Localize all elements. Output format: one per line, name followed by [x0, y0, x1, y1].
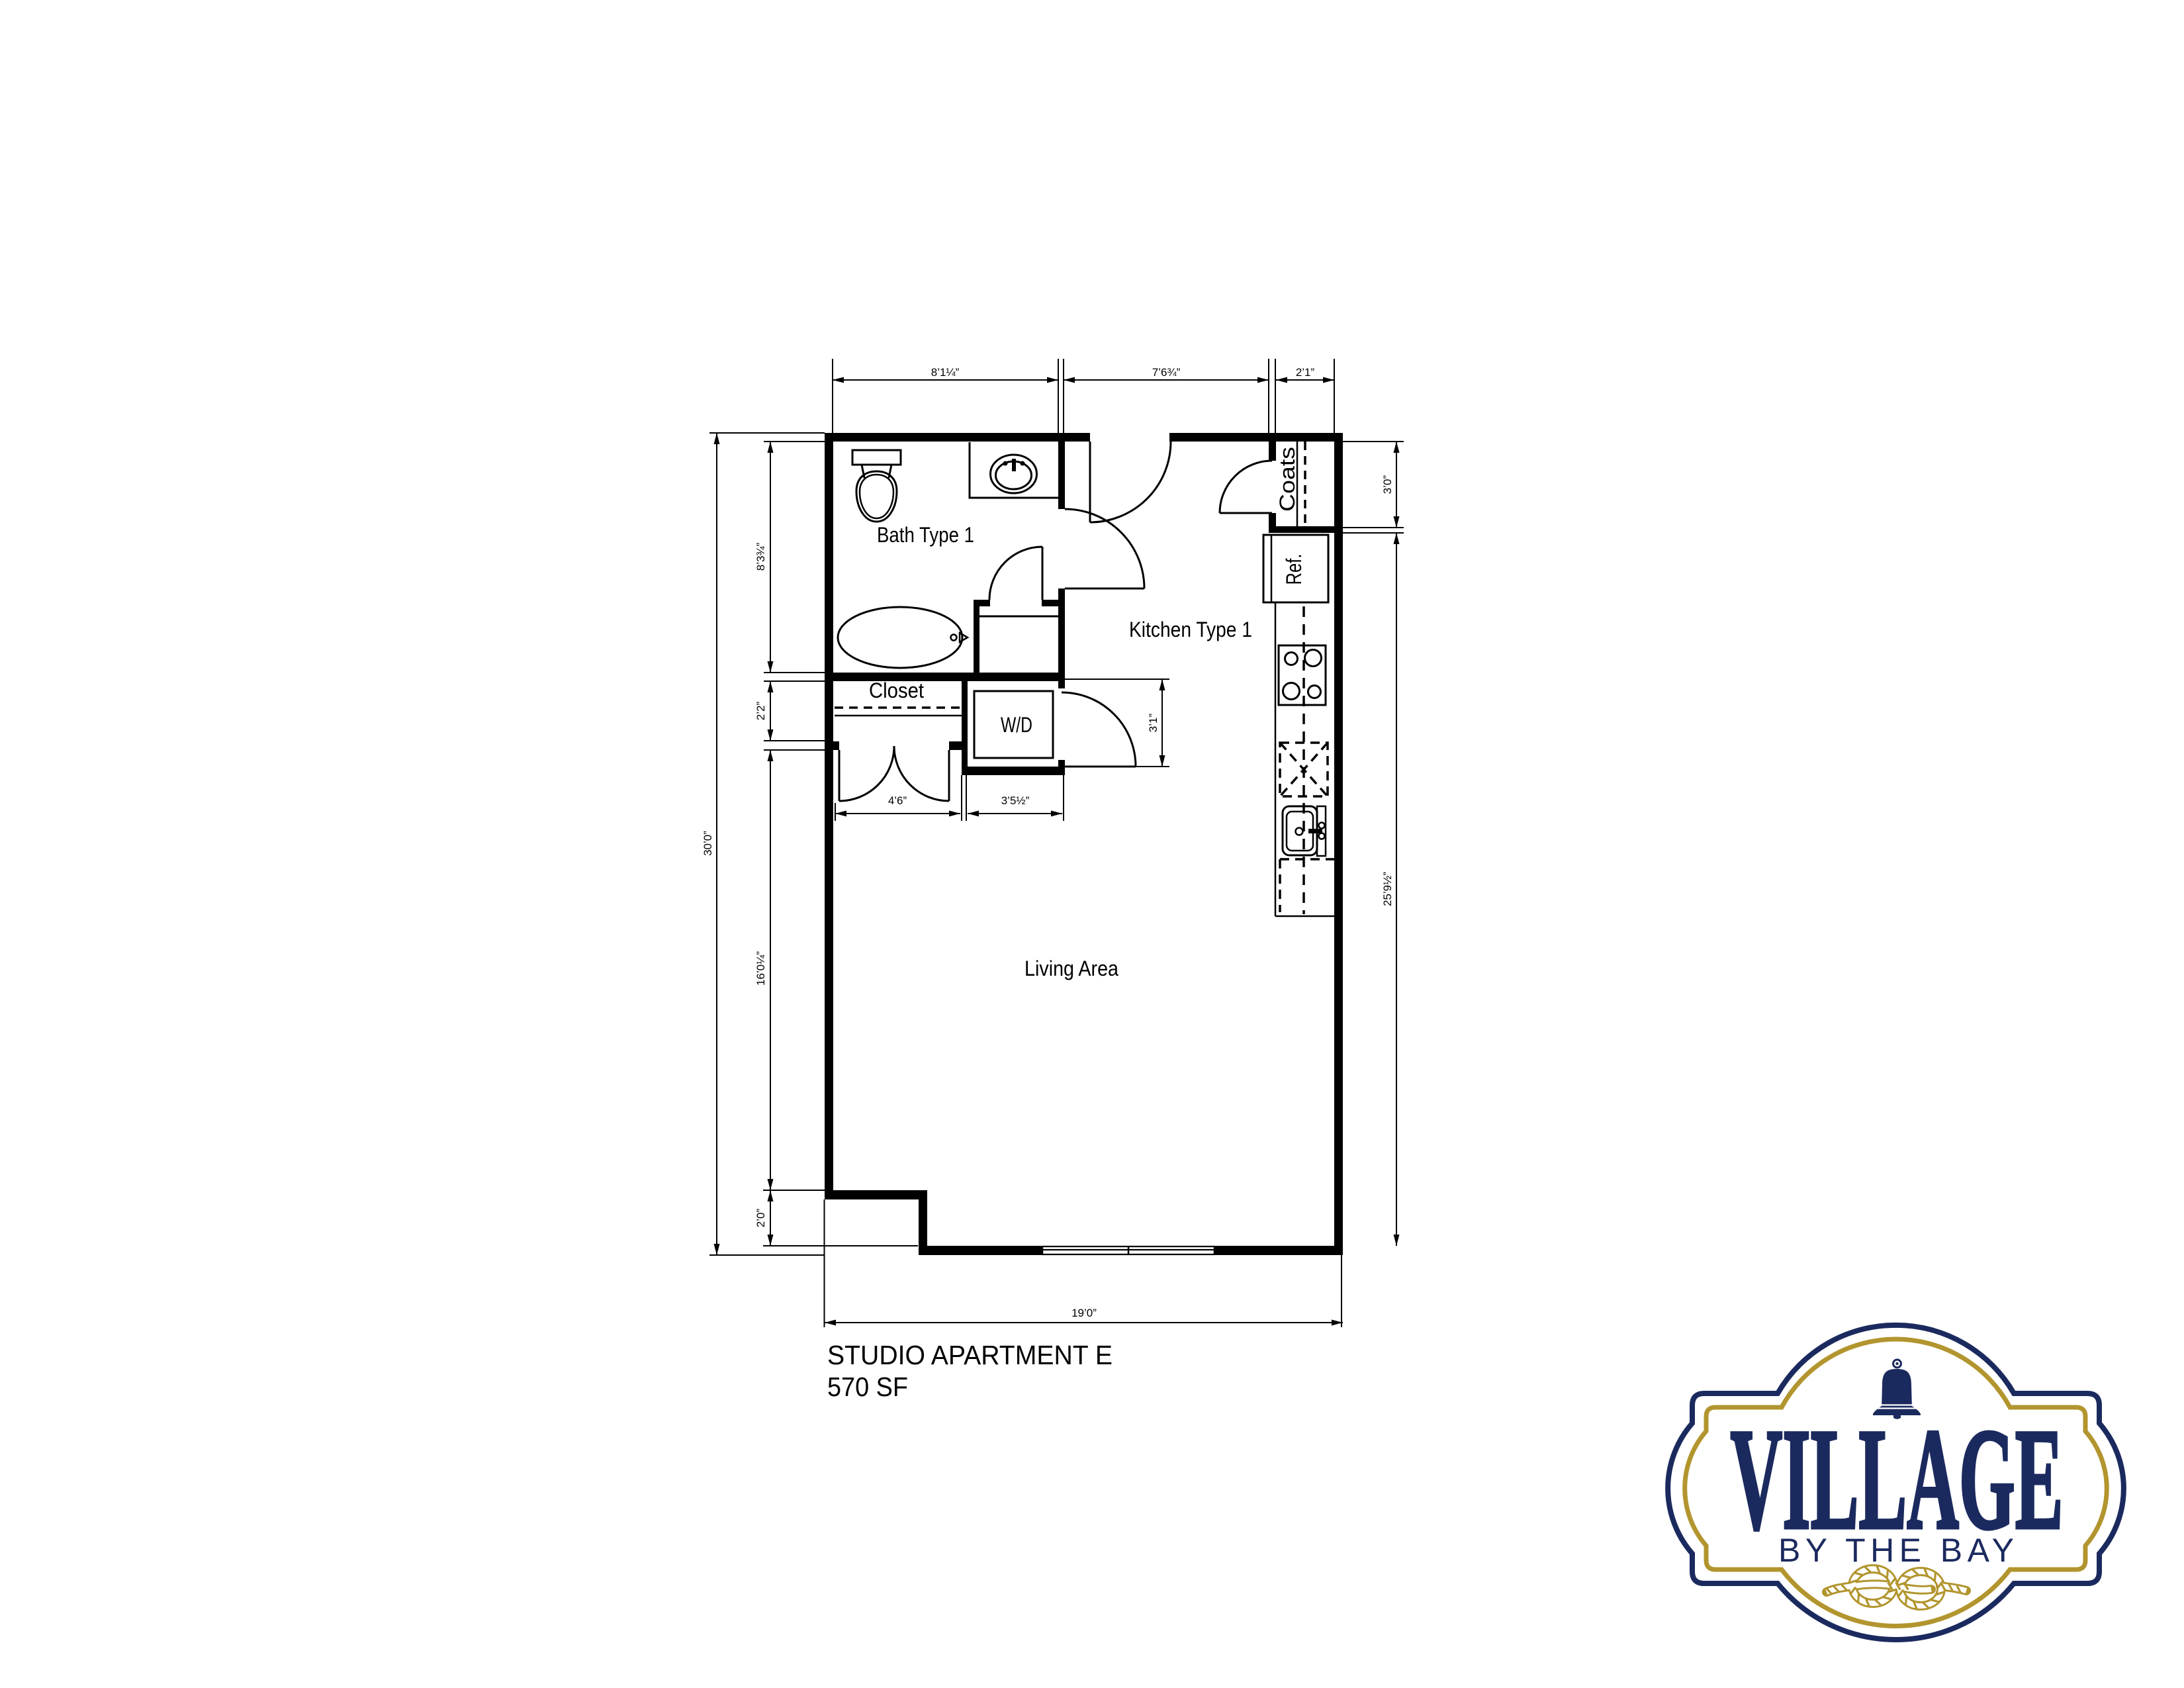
svg-text:3’5½”: 3’5½” — [1001, 794, 1030, 807]
svg-text:8’3¾”: 8’3¾” — [754, 542, 767, 571]
svg-text:3’0”: 3’0” — [1381, 475, 1394, 494]
svg-text:7’6¾”: 7’6¾” — [1152, 366, 1181, 379]
svg-text:Bath Type 1: Bath Type 1 — [877, 523, 974, 547]
svg-text:STUDIO APARTMENT E: STUDIO APARTMENT E — [827, 1340, 1113, 1370]
svg-text:Kitchen Type 1: Kitchen Type 1 — [1129, 618, 1252, 641]
svg-text:2’2”: 2’2” — [754, 701, 767, 720]
svg-text:Ref.: Ref. — [1282, 554, 1306, 585]
svg-text:3’1”: 3’1” — [1147, 713, 1160, 732]
svg-text:2’1”: 2’1” — [1296, 366, 1315, 379]
svg-text:4’6”: 4’6” — [888, 794, 907, 807]
svg-text:8’1¼”: 8’1¼” — [931, 366, 960, 379]
svg-text:19’0”: 19’0” — [1071, 1307, 1097, 1319]
svg-text:W/D: W/D — [1001, 713, 1032, 737]
svg-text:Closet: Closet — [869, 679, 924, 702]
svg-text:570 SF: 570 SF — [827, 1372, 908, 1402]
svg-text:Living Area: Living Area — [1024, 957, 1118, 980]
svg-text:25’9½”: 25’9½” — [1381, 872, 1394, 906]
svg-text:16’0¼”: 16’0¼” — [754, 951, 767, 986]
svg-text:2’0”: 2’0” — [754, 1208, 767, 1227]
svg-text:30’0”: 30’0” — [702, 831, 714, 856]
svg-text:Coats: Coats — [1275, 447, 1299, 512]
